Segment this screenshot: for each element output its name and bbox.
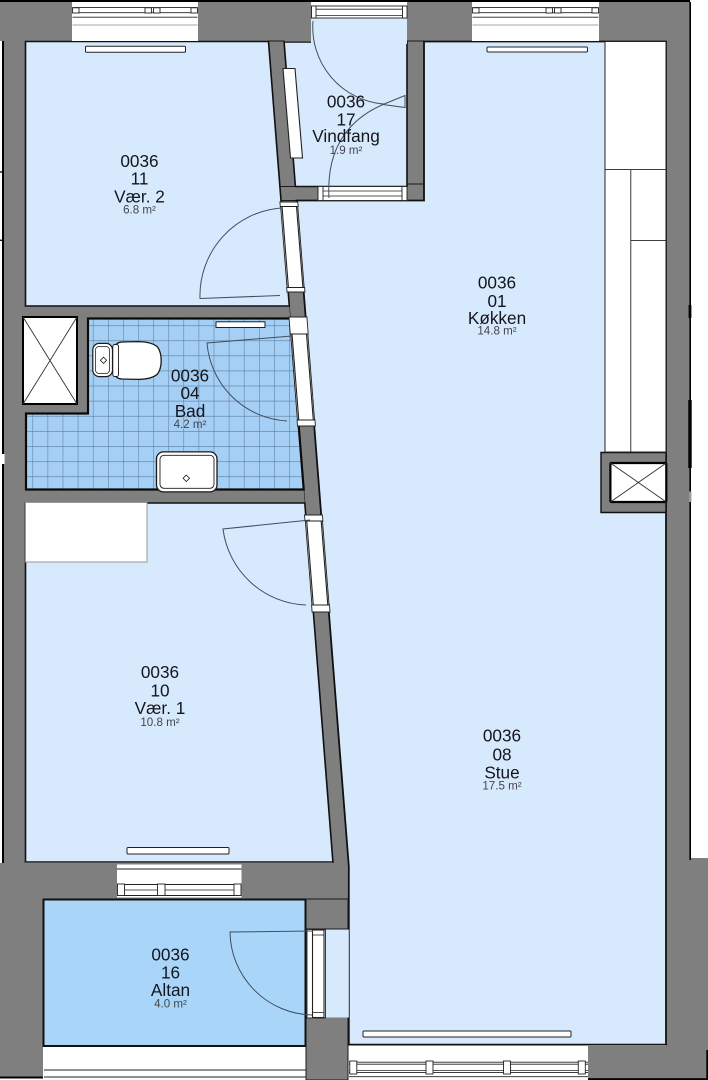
svg-text:10.8 m²: 10.8 m² [140,716,179,729]
svg-text:17.5 m²: 17.5 m² [482,780,521,793]
svg-text:1.9 m²: 1.9 m² [330,144,363,157]
svg-text:0036: 0036 [141,662,179,682]
svg-text:Vindfang: Vindfang [312,126,380,146]
svg-text:0036: 0036 [478,272,516,292]
svg-text:6.8 m²: 6.8 m² [123,204,156,217]
svg-text:0036: 0036 [327,91,365,111]
svg-text:4.2 m²: 4.2 m² [174,418,207,431]
svg-text:0036: 0036 [151,944,189,964]
svg-text:04: 04 [180,383,200,403]
svg-text:0036: 0036 [483,726,521,746]
svg-text:4.0 m²: 4.0 m² [154,998,187,1011]
svg-text:14.8 m²: 14.8 m² [477,325,516,338]
